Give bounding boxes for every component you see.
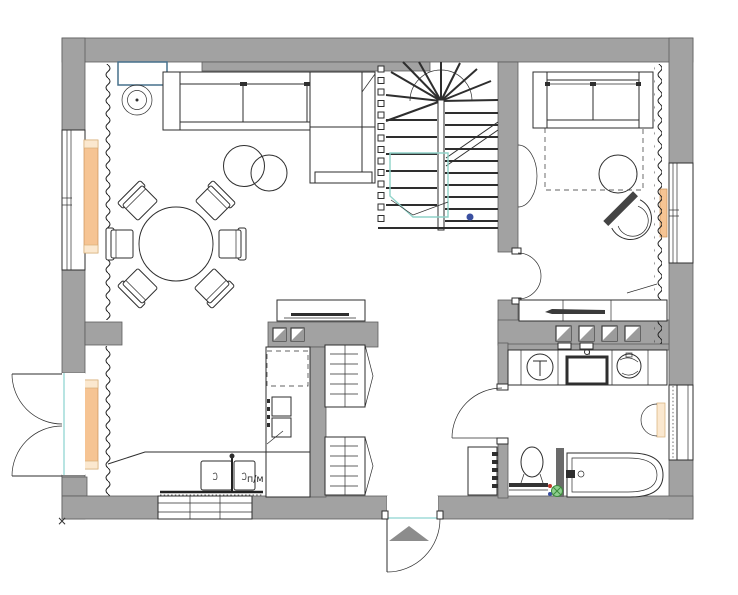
bedroom-window <box>669 163 693 263</box>
bathroom-window <box>669 385 693 460</box>
hot-water-point <box>548 484 552 488</box>
kitchen-radiator <box>84 380 98 469</box>
kitchen-curtain-zigzag <box>103 346 111 496</box>
stair-blue-dot <box>467 214 474 221</box>
living-radiator <box>84 140 98 253</box>
kitchen-bottom-window <box>158 496 252 519</box>
wall-console <box>118 62 167 85</box>
living-window <box>62 130 85 270</box>
entry-cabinet <box>468 447 498 495</box>
floor-plan-canvas: п/м <box>0 0 738 595</box>
kitchen-counter-column <box>266 347 310 497</box>
stair-stringer <box>438 100 444 230</box>
sofa-chaise <box>310 72 375 183</box>
corner-marker: × <box>57 514 67 528</box>
bath-faucet <box>566 470 575 478</box>
floor-drain <box>552 486 563 497</box>
tv-cabinet <box>277 300 365 321</box>
bathtub <box>566 453 663 497</box>
dishwasher-label: п/м <box>247 474 264 485</box>
living-curtain-zigzag <box>103 64 111 320</box>
cold-water-point <box>548 492 552 496</box>
floor-plan-page: п/м <box>0 0 738 595</box>
